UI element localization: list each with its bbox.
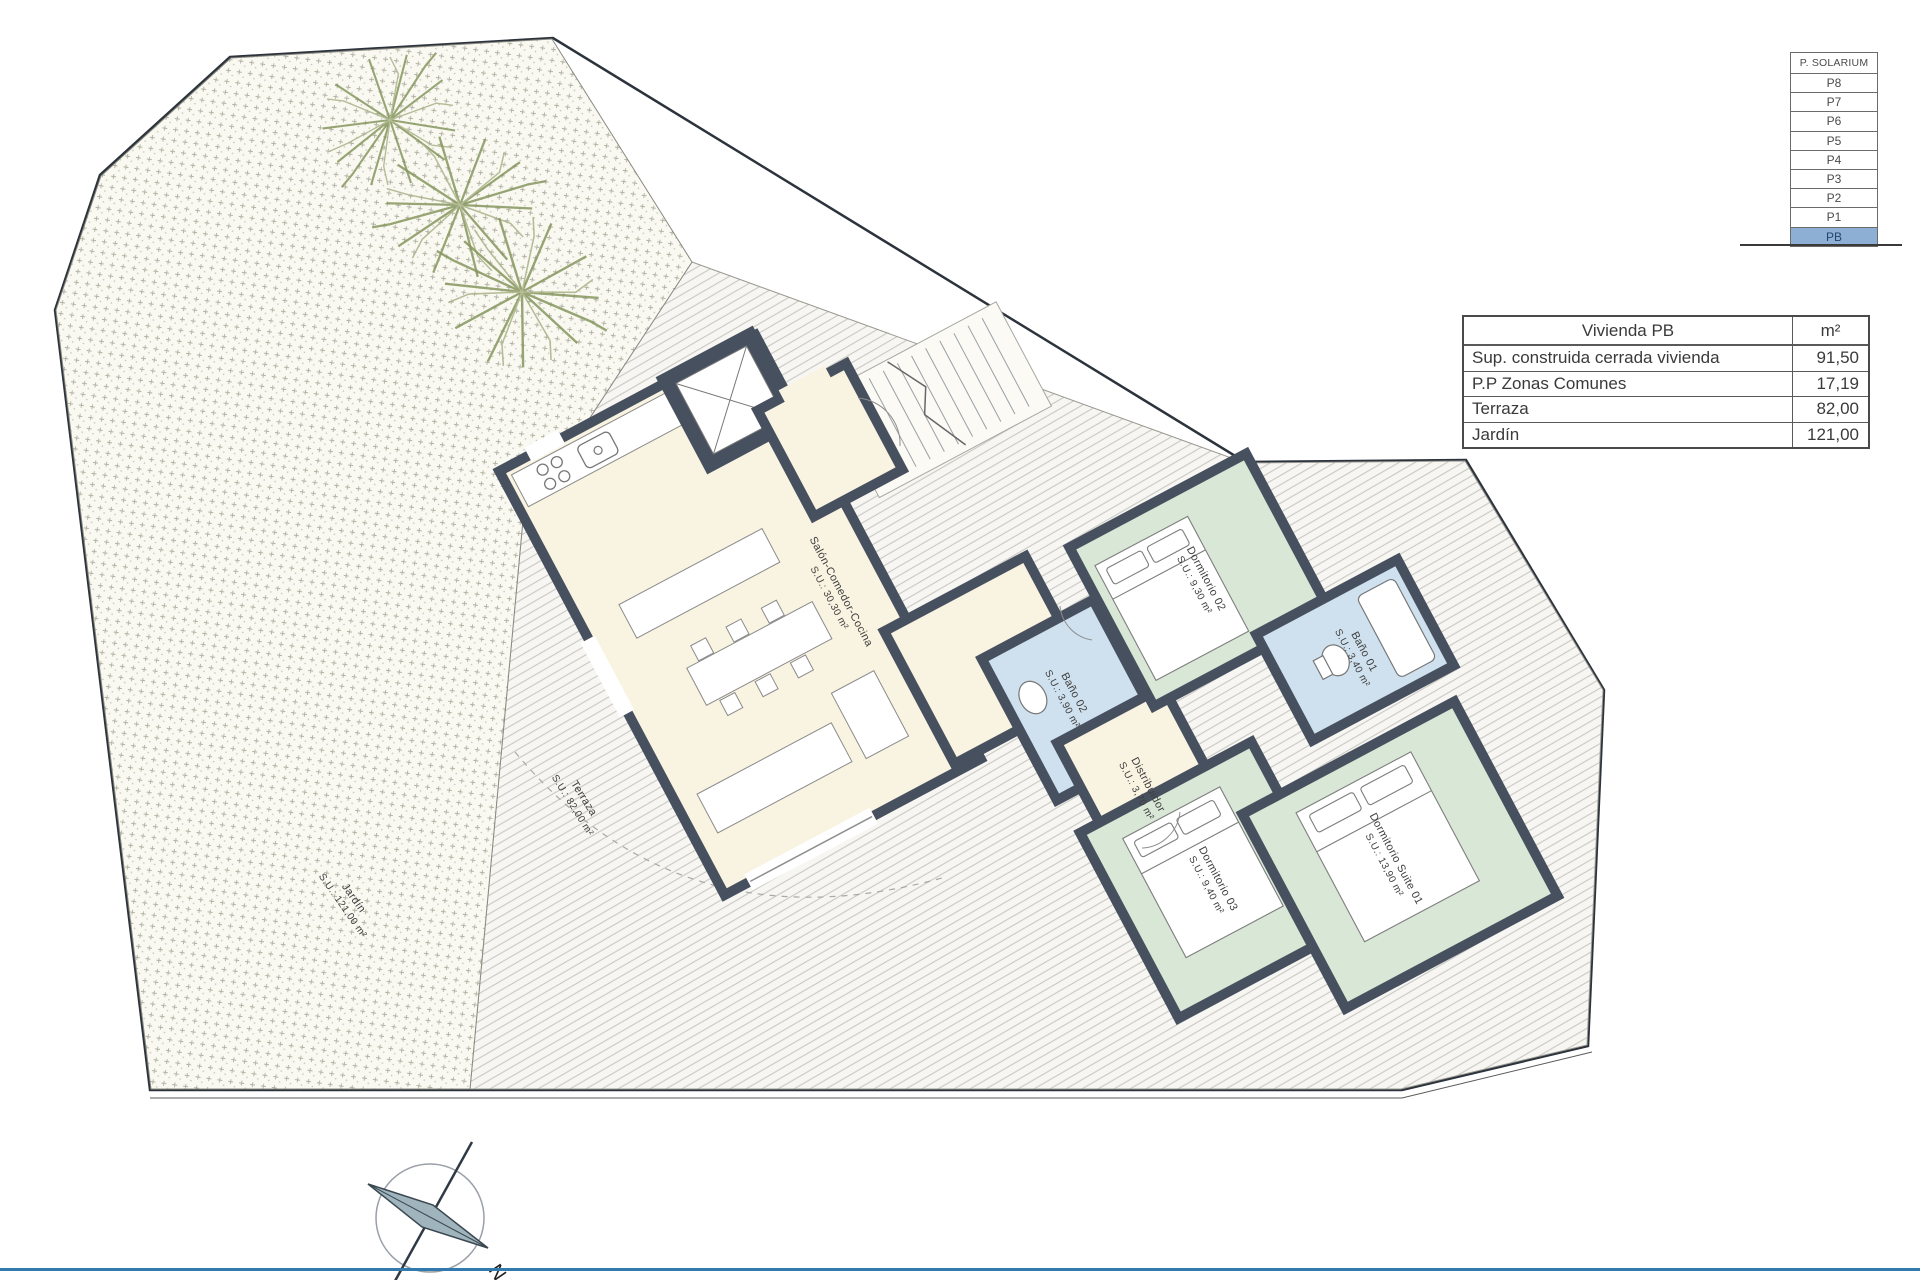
footer-accent-line [0,1268,1920,1271]
floor-row-pb-active[interactable]: PB [1791,228,1877,246]
floor-selector: P. SOLARIUM P8 P7 P6 P5 P4 P3 P2 P1 PB [1790,52,1878,247]
floor-row-p8[interactable]: P8 [1791,74,1877,93]
area-table-row: Sup. construida cerrada vivienda 91,50 [1464,345,1868,371]
area-table: Vivienda PB m² Sup. construida cerrada v… [1462,315,1870,449]
area-table-row: Terraza 82,00 [1464,396,1868,422]
area-table-row: P.P Zonas Comunes 17,19 [1464,371,1868,397]
area-table-row: Jardín 121,00 [1464,422,1868,448]
floor-row-p4[interactable]: P4 [1791,151,1877,170]
floor-row-p6[interactable]: P6 [1791,112,1877,131]
floor-row-p3[interactable]: P3 [1791,170,1877,189]
area-table-title: Vivienda PB [1464,321,1792,341]
area-table-header: Vivienda PB m² [1464,317,1868,345]
floor-row-p1[interactable]: P1 [1791,208,1877,227]
floor-selector-header: P. SOLARIUM [1791,53,1877,74]
ground-line [1740,244,1902,246]
site-plan-drawing: N [0,0,1920,1280]
area-table-unit: m² [1792,317,1868,344]
floor-row-p2[interactable]: P2 [1791,189,1877,208]
floor-row-p7[interactable]: P7 [1791,93,1877,112]
north-compass-icon: N [368,1142,510,1280]
floor-row-p5[interactable]: P5 [1791,132,1877,151]
plan-canvas: N Salón-Comedor-CocinaS.U.: 30,30 m² Dor… [0,0,1920,1280]
